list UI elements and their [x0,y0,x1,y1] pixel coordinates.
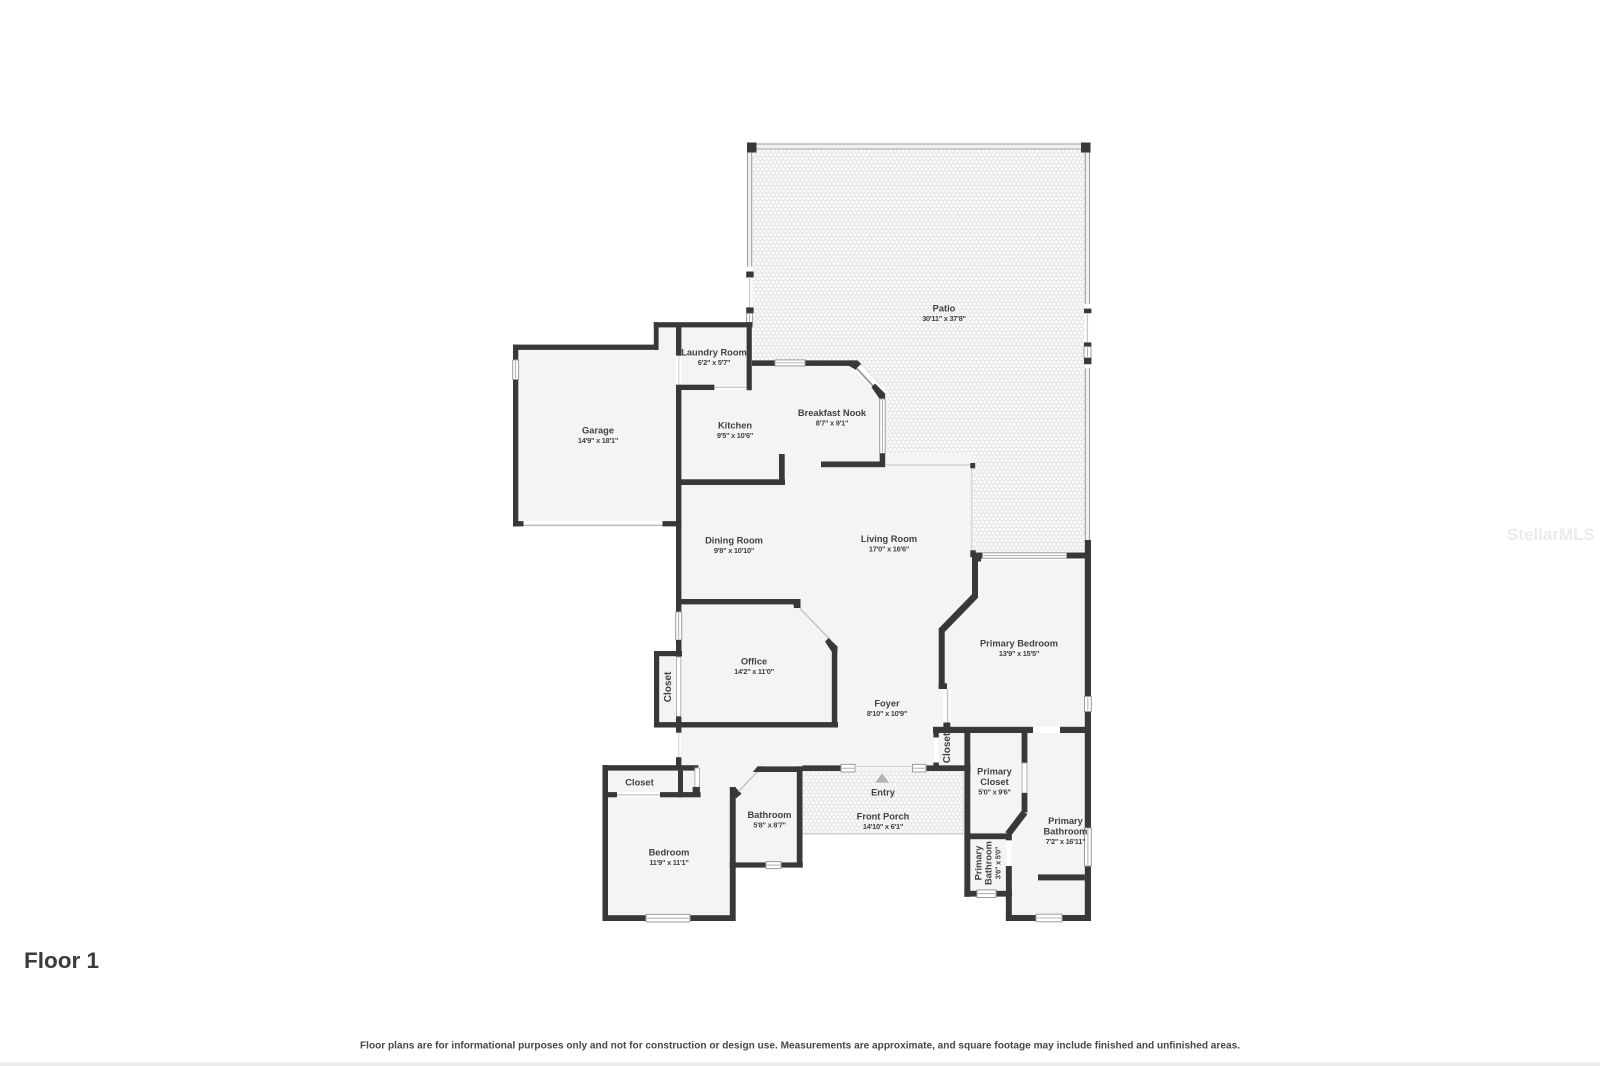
svg-text:5'8" x 8'7": 5'8" x 8'7" [753,820,786,829]
svg-text:30'11" x 37'8": 30'11" x 37'8" [922,314,966,323]
svg-text:Closet: Closet [942,732,953,763]
svg-text:3'6" x 5'0": 3'6" x 5'0" [993,846,1002,879]
svg-text:Bathroom: Bathroom [983,841,993,885]
svg-text:Primary: Primary [977,767,1012,777]
svg-text:13'9" x 15'5": 13'9" x 15'5" [999,649,1040,658]
svg-text:14'10" x 6'1": 14'10" x 6'1" [863,822,904,831]
svg-text:8'10" x 10'9": 8'10" x 10'9" [867,709,908,718]
svg-text:Patio: Patio [933,303,956,313]
svg-text:5'0" x 9'6": 5'0" x 9'6" [978,788,1011,797]
svg-text:14'2" x 11'0": 14'2" x 11'0" [734,667,774,676]
svg-text:Living Room: Living Room [861,534,917,544]
svg-text:StellarMLS: StellarMLS [1507,525,1595,544]
svg-text:Foyer: Foyer [874,698,900,708]
svg-text:Kitchen: Kitchen [718,420,752,430]
svg-text:Office: Office [741,656,767,666]
svg-text:Breakfast Nook: Breakfast Nook [798,408,867,418]
svg-text:14'9" x 18'1": 14'9" x 18'1" [578,436,619,445]
svg-text:Primary Bedroom: Primary Bedroom [980,638,1058,648]
svg-text:Garage: Garage [582,425,614,435]
svg-text:7'2" x 16'11": 7'2" x 16'11" [1046,837,1086,846]
svg-text:Bathroom: Bathroom [1044,827,1088,837]
svg-text:Front Porch: Front Porch [857,811,910,821]
svg-text:Closet: Closet [663,671,674,702]
svg-text:9'5" x 10'6": 9'5" x 10'6" [717,431,754,440]
svg-text:8'7" x 9'1": 8'7" x 9'1" [816,418,849,427]
svg-text:Floor plans are for informatio: Floor plans are for informational purpos… [360,1041,1240,1052]
svg-text:9'8" x 10'10": 9'8" x 10'10" [714,546,755,555]
svg-text:Floor 1: Floor 1 [24,948,99,973]
svg-text:17'0" x 16'6": 17'0" x 16'6" [869,544,910,553]
svg-text:Bedroom: Bedroom [649,847,690,857]
svg-text:Primary: Primary [973,845,983,880]
svg-text:Primary: Primary [1048,816,1083,826]
svg-text:Closet: Closet [980,777,1008,787]
svg-text:Laundry Room: Laundry Room [681,347,747,357]
svg-text:Bathroom: Bathroom [748,810,792,820]
svg-text:11'9" x 11'1": 11'9" x 11'1" [649,858,689,867]
svg-text:Entry: Entry [871,787,896,797]
svg-text:6'2" x 5'7": 6'2" x 5'7" [698,358,731,367]
svg-text:Dining Room: Dining Room [705,535,763,545]
svg-text:Closet: Closet [625,777,653,787]
